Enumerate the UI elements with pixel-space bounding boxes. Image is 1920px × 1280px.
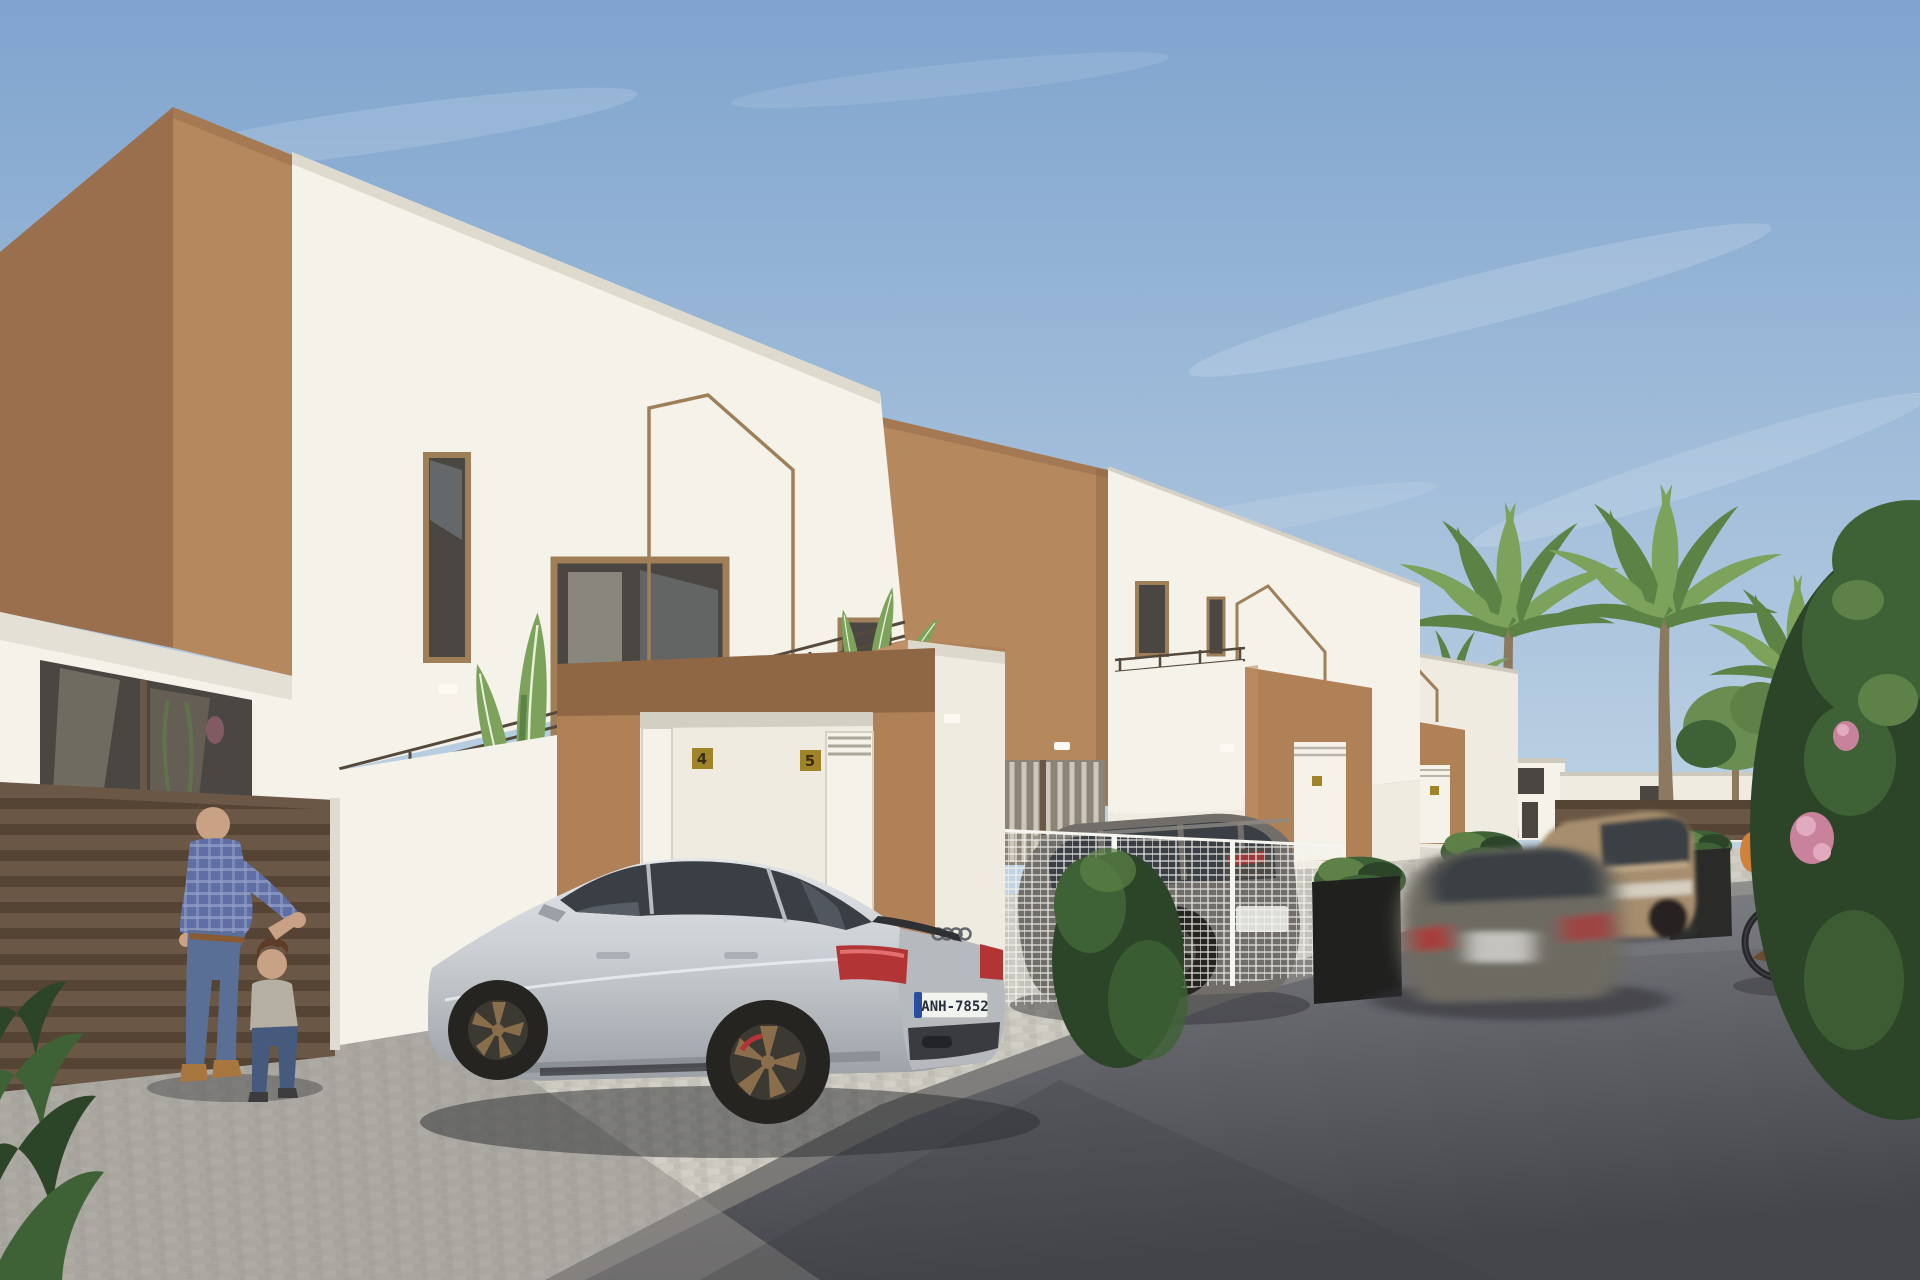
house-number-right: 5: [805, 752, 815, 770]
wall-sconce: [944, 714, 960, 723]
wall-sconce: [1220, 744, 1234, 752]
rear-wheel: [706, 1000, 830, 1124]
brown-cube-front-face: [173, 107, 292, 676]
render-image: 4 5: [0, 0, 1920, 1280]
house-number-plaque-left: 4: [692, 748, 713, 769]
wall-sconce: [1054, 742, 1070, 750]
license-plate-text: ANH-7852: [921, 999, 988, 1015]
house-number-plaque-right: 5: [800, 750, 821, 771]
scene-canvas: 4 5: [0, 0, 1920, 1280]
front-wheel: [448, 980, 548, 1080]
wall-sconce: [438, 684, 458, 694]
house-number-left: 4: [697, 750, 707, 768]
license-plate: ANH-7852: [914, 992, 989, 1018]
